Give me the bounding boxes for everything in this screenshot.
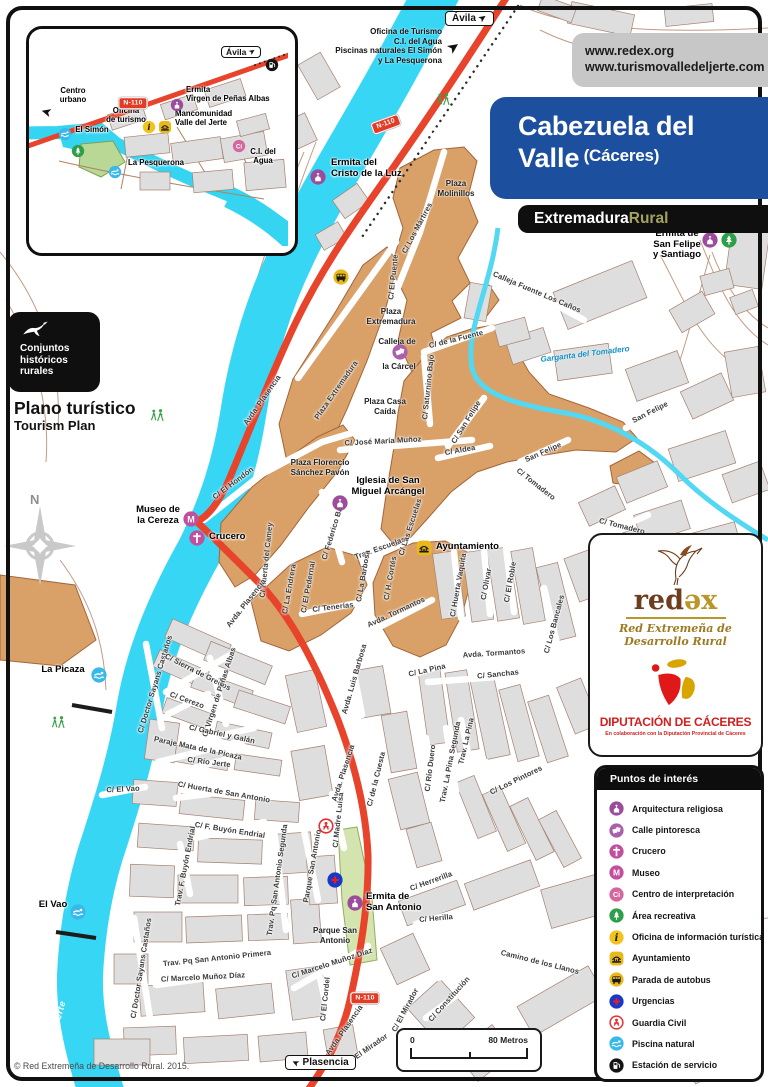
plasencia-road-sign: ➤ Plasencia xyxy=(285,1055,356,1070)
svg-text:i: i xyxy=(615,932,619,943)
diputacion-logo-icon xyxy=(645,657,707,714)
avila-road-sign: Ávila ➤ xyxy=(445,11,494,26)
inset-label: C.I. delAgua xyxy=(250,148,276,166)
legend-item: Ayuntamiento xyxy=(609,948,753,969)
crucero-icon xyxy=(609,844,624,859)
religiosa-icon xyxy=(171,99,184,112)
svg-text:Ci: Ci xyxy=(613,891,620,899)
directions-line: C.I. del Agua xyxy=(330,37,442,47)
title-box: Cabezuela del Valle (Cáceres) xyxy=(490,97,768,199)
avila-label: Ávila xyxy=(452,13,476,24)
plasencia-label: Plasencia xyxy=(303,1057,349,1068)
legend-item: MMuseo xyxy=(609,862,753,883)
area-icon xyxy=(72,145,85,158)
conjuntos-line3: rurales xyxy=(20,366,100,378)
legend-item-label: Calle pintoresca xyxy=(632,825,700,835)
legend-item: Piscina natural xyxy=(609,1033,753,1054)
conjuntos-line1: Conjuntos xyxy=(20,343,100,355)
gas-icon xyxy=(266,59,279,72)
legend-item-label: Estación de servicio xyxy=(632,1060,717,1070)
scale-end: 80 Metros xyxy=(488,1035,528,1045)
inset-label: MancomunidadValle del Jerte xyxy=(175,110,232,128)
inset-avila-label: Ávila xyxy=(226,47,246,57)
extremadura-rural-bar: Extremadura Rural xyxy=(518,205,768,233)
redex-subtitle-2: Desarrollo Rural xyxy=(624,635,727,648)
directions-line: y La Pesquerona xyxy=(330,56,442,66)
legend-item: Área recreativa xyxy=(609,905,753,926)
directions-line: Piscinas naturales El Simón xyxy=(330,46,442,56)
inset-label: Oficinade turismo xyxy=(106,107,146,125)
arrow-up-right-icon: ➤ xyxy=(477,12,490,25)
tourism-map-page: { "header": { "urls": ["www.redex.org", … xyxy=(0,0,768,1087)
page-title-line1: Cabezuela del xyxy=(518,111,768,141)
guardia-icon xyxy=(609,1015,624,1030)
inset-label-line: Virgen de Peñas Albas xyxy=(186,95,270,104)
page-title-province: (Cáceres) xyxy=(584,141,660,171)
ayto-icon xyxy=(159,121,172,134)
legend-item: Arquitectura religiosa xyxy=(609,798,753,819)
legend-item: Crucero xyxy=(609,841,753,862)
conjuntos-historicos-badge: Conjuntos históricos rurales xyxy=(8,312,100,392)
inset-avila-sign: Ávila ➤ xyxy=(221,46,261,58)
plan-title-es: Plano turístico xyxy=(14,399,136,418)
divider xyxy=(626,617,726,619)
inset-n110-badge: N-110 xyxy=(118,97,147,109)
inset-label-line: La Pesquerona xyxy=(128,159,184,168)
svg-text:Ci: Ci xyxy=(236,143,242,150)
legend-item: CiCentro de interpretación xyxy=(609,884,753,905)
inset-label-line: de turismo xyxy=(106,116,146,125)
inset-label: El Simón xyxy=(75,126,108,135)
piscina-icon xyxy=(609,1036,624,1051)
inset-label-line: Agua xyxy=(250,157,276,166)
pintoresca-icon xyxy=(609,823,624,838)
legend-box: Puntos de interés Arquitectura religiosa… xyxy=(594,765,764,1082)
inset-label-line: urbano xyxy=(60,96,86,105)
inset-overview-map: CentrourbanoErmitaVirgen de Peñas AlbasO… xyxy=(26,26,298,256)
sponsor-logos-box: redəx Red Extremeña de Desarrollo Rural … xyxy=(588,533,763,757)
legend-item: Estación de servicio xyxy=(609,1055,753,1076)
conjuntos-line2: históricos xyxy=(20,355,100,367)
urgencias-icon xyxy=(609,994,624,1009)
arrow-up-right-icon: ➤ xyxy=(248,47,258,57)
legend-item: iOficina de información turística xyxy=(609,926,753,947)
diputacion-subtitle: En colaboración con la Diputación Provin… xyxy=(605,731,745,737)
brand-extremadura: Extremadura xyxy=(534,210,629,228)
redex-word-ex: əx xyxy=(684,585,717,616)
redex-wordmark: redəx xyxy=(634,588,718,614)
copyright-text: © Red Extremeña de Desarrollo Rural. 201… xyxy=(14,1061,189,1071)
inset-label-line: Valle del Jerte xyxy=(175,119,232,128)
page-title-line2: Valle xyxy=(518,143,580,173)
arrow-down-left-icon: ➤ xyxy=(290,1057,301,1068)
inset-label: Centrourbano xyxy=(60,87,86,105)
legend-item-label: Piscina natural xyxy=(632,1039,695,1049)
diputacion-title: DIPUTACIÓN DE CÁCERES xyxy=(600,715,752,729)
legend-item-label: Arquitectura religiosa xyxy=(632,804,723,814)
plan-title: Plano turístico Tourism Plan xyxy=(14,399,136,433)
legend-item-label: Parada de autobus xyxy=(632,975,711,985)
stork-icon xyxy=(20,325,50,342)
legend-item-label: Ayuntamiento xyxy=(632,953,690,963)
piscina-icon xyxy=(59,128,72,141)
ci-icon: Ci xyxy=(233,140,246,153)
redex-word-red: red xyxy=(634,585,684,616)
website-urls-box: www.redex.org www.turismovalledeljerte.c… xyxy=(572,33,768,87)
legend-item: Urgencias xyxy=(609,991,753,1012)
directions-note: Oficina de TurismoC.I. del AguaPiscinas … xyxy=(330,27,442,65)
plan-title-en: Tourism Plan xyxy=(14,418,136,433)
brand-rural: Rural xyxy=(629,210,669,228)
directions-line: Oficina de Turismo xyxy=(330,27,442,37)
river-label: Río Jerte xyxy=(156,196,197,213)
redex-subtitle-1: Red Extremeña de xyxy=(619,622,732,635)
legend-item-label: Área recreativa xyxy=(632,911,696,921)
legend-item-label: Urgencias xyxy=(632,996,675,1006)
legend-items: Arquitectura religiosaCalle pintorescaCr… xyxy=(597,790,761,1076)
inset-label-line: El Simón xyxy=(75,126,108,135)
legend-item-label: Museo xyxy=(632,868,660,878)
north-indicator: N xyxy=(30,492,39,507)
inset-label: ErmitaVirgen de Peñas Albas xyxy=(186,86,270,104)
url-turismo: www.turismovalledeljerte.com xyxy=(585,59,768,75)
museo-icon: M xyxy=(609,865,624,880)
inset-label: La Pesquerona xyxy=(128,159,184,168)
svg-text:M: M xyxy=(613,868,620,878)
bus-icon xyxy=(609,972,624,987)
legend-item: Calle pintoresca xyxy=(609,819,753,840)
ci-icon: Ci xyxy=(609,887,624,902)
svg-text:i: i xyxy=(147,123,150,133)
legend-item-label: Oficina de información turística xyxy=(632,932,764,942)
legend-item-label: Guardia Civil xyxy=(632,1018,686,1028)
inset-label-layer: CentrourbanoErmitaVirgen de Peñas AlbasO… xyxy=(29,29,288,246)
legend-item-label: Crucero xyxy=(632,846,666,856)
info-icon: i xyxy=(143,121,156,134)
religiosa-icon xyxy=(609,801,624,816)
gas-icon xyxy=(609,1058,624,1073)
legend-item: Parada de autobus xyxy=(609,969,753,990)
scale-start: 0 xyxy=(410,1035,415,1045)
url-redex: www.redex.org xyxy=(585,43,768,59)
info-icon: i xyxy=(609,930,624,945)
scale-line xyxy=(410,1048,528,1059)
legend-item-label: Centro de interpretación xyxy=(632,889,734,899)
area-icon xyxy=(609,908,624,923)
legend-item: Guardia Civil xyxy=(609,1012,753,1033)
scale-bar: 0 80 Metros xyxy=(396,1028,542,1072)
legend-title: Puntos de interés xyxy=(597,768,761,790)
piscina-icon xyxy=(109,166,122,179)
ayto-icon xyxy=(609,951,624,966)
